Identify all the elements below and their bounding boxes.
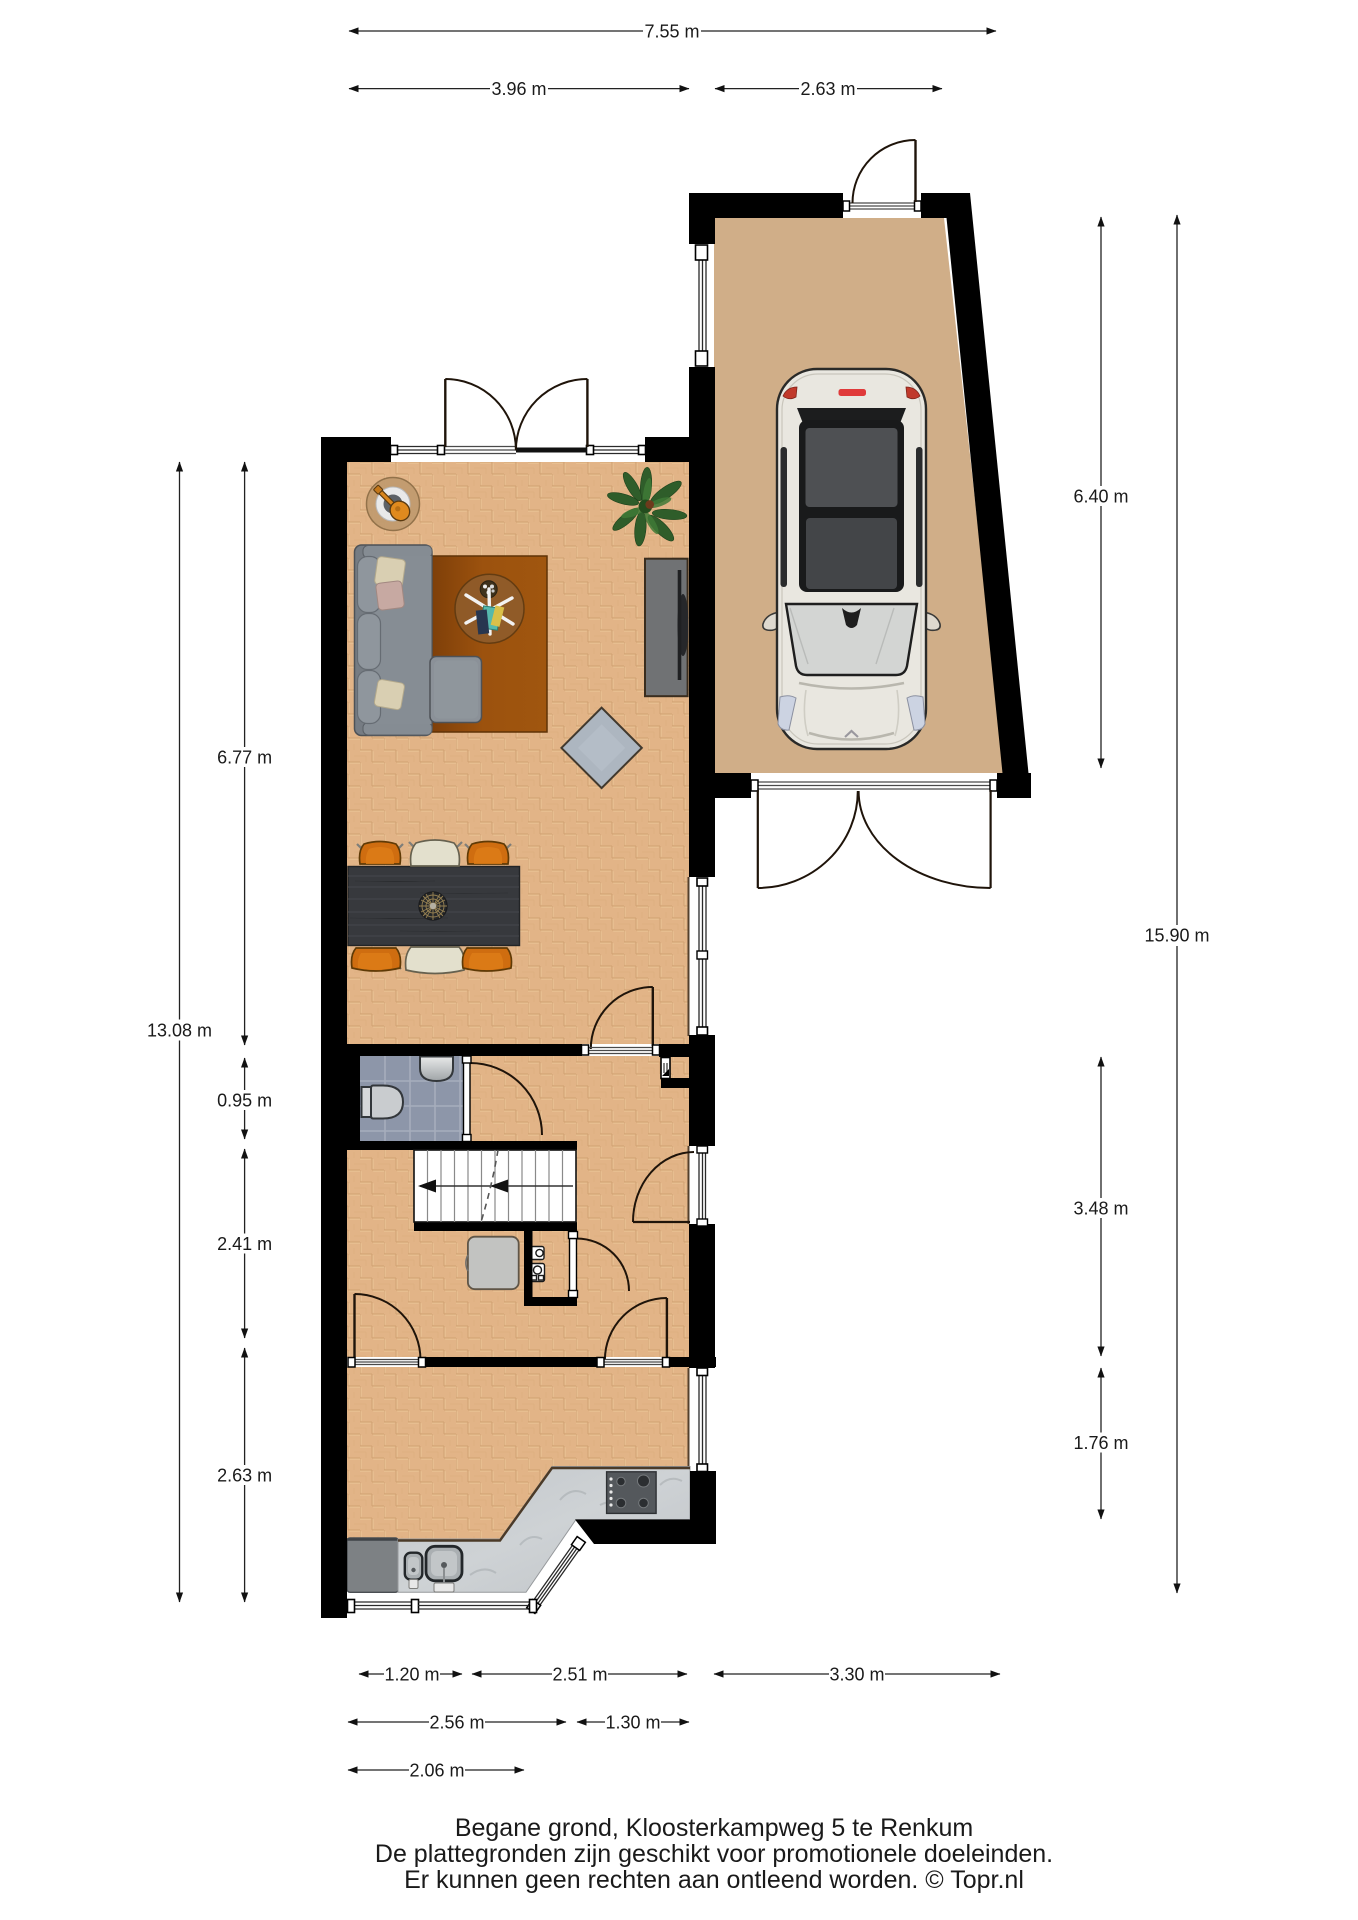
svg-text:13.08 m: 13.08 m [147,1021,212,1041]
svg-text:3.48 m: 3.48 m [1073,1199,1128,1219]
svg-text:0.95 m: 0.95 m [217,1091,272,1111]
svg-text:7.55 m: 7.55 m [644,22,699,42]
svg-text:15.90 m: 15.90 m [1144,926,1209,946]
svg-text:1.30 m: 1.30 m [605,1713,660,1733]
svg-text:De plattegronden zijn geschikt: De plattegronden zijn geschikt voor prom… [375,1840,1053,1868]
svg-text:2.63 m: 2.63 m [800,79,855,99]
svg-text:2.63 m: 2.63 m [217,1466,272,1486]
svg-text:2.56 m: 2.56 m [429,1713,484,1733]
svg-text:3.30 m: 3.30 m [829,1665,884,1685]
svg-text:2.41 m: 2.41 m [217,1234,272,1254]
svg-text:2.06 m: 2.06 m [409,1761,464,1781]
svg-text:2.51 m: 2.51 m [552,1665,607,1685]
svg-text:1.20 m: 1.20 m [384,1665,439,1685]
svg-text:3.96 m: 3.96 m [491,79,546,99]
svg-text:6.77 m: 6.77 m [217,748,272,768]
svg-text:6.40 m: 6.40 m [1073,487,1128,507]
svg-text:1.76 m: 1.76 m [1073,1433,1128,1453]
svg-text:Begane grond, Kloosterkampweg: Begane grond, Kloosterkampweg 5 te Renku… [455,1814,973,1842]
svg-text:Er kunnen geen rechten aan ont: Er kunnen geen rechten aan ontleend word… [404,1866,1024,1894]
